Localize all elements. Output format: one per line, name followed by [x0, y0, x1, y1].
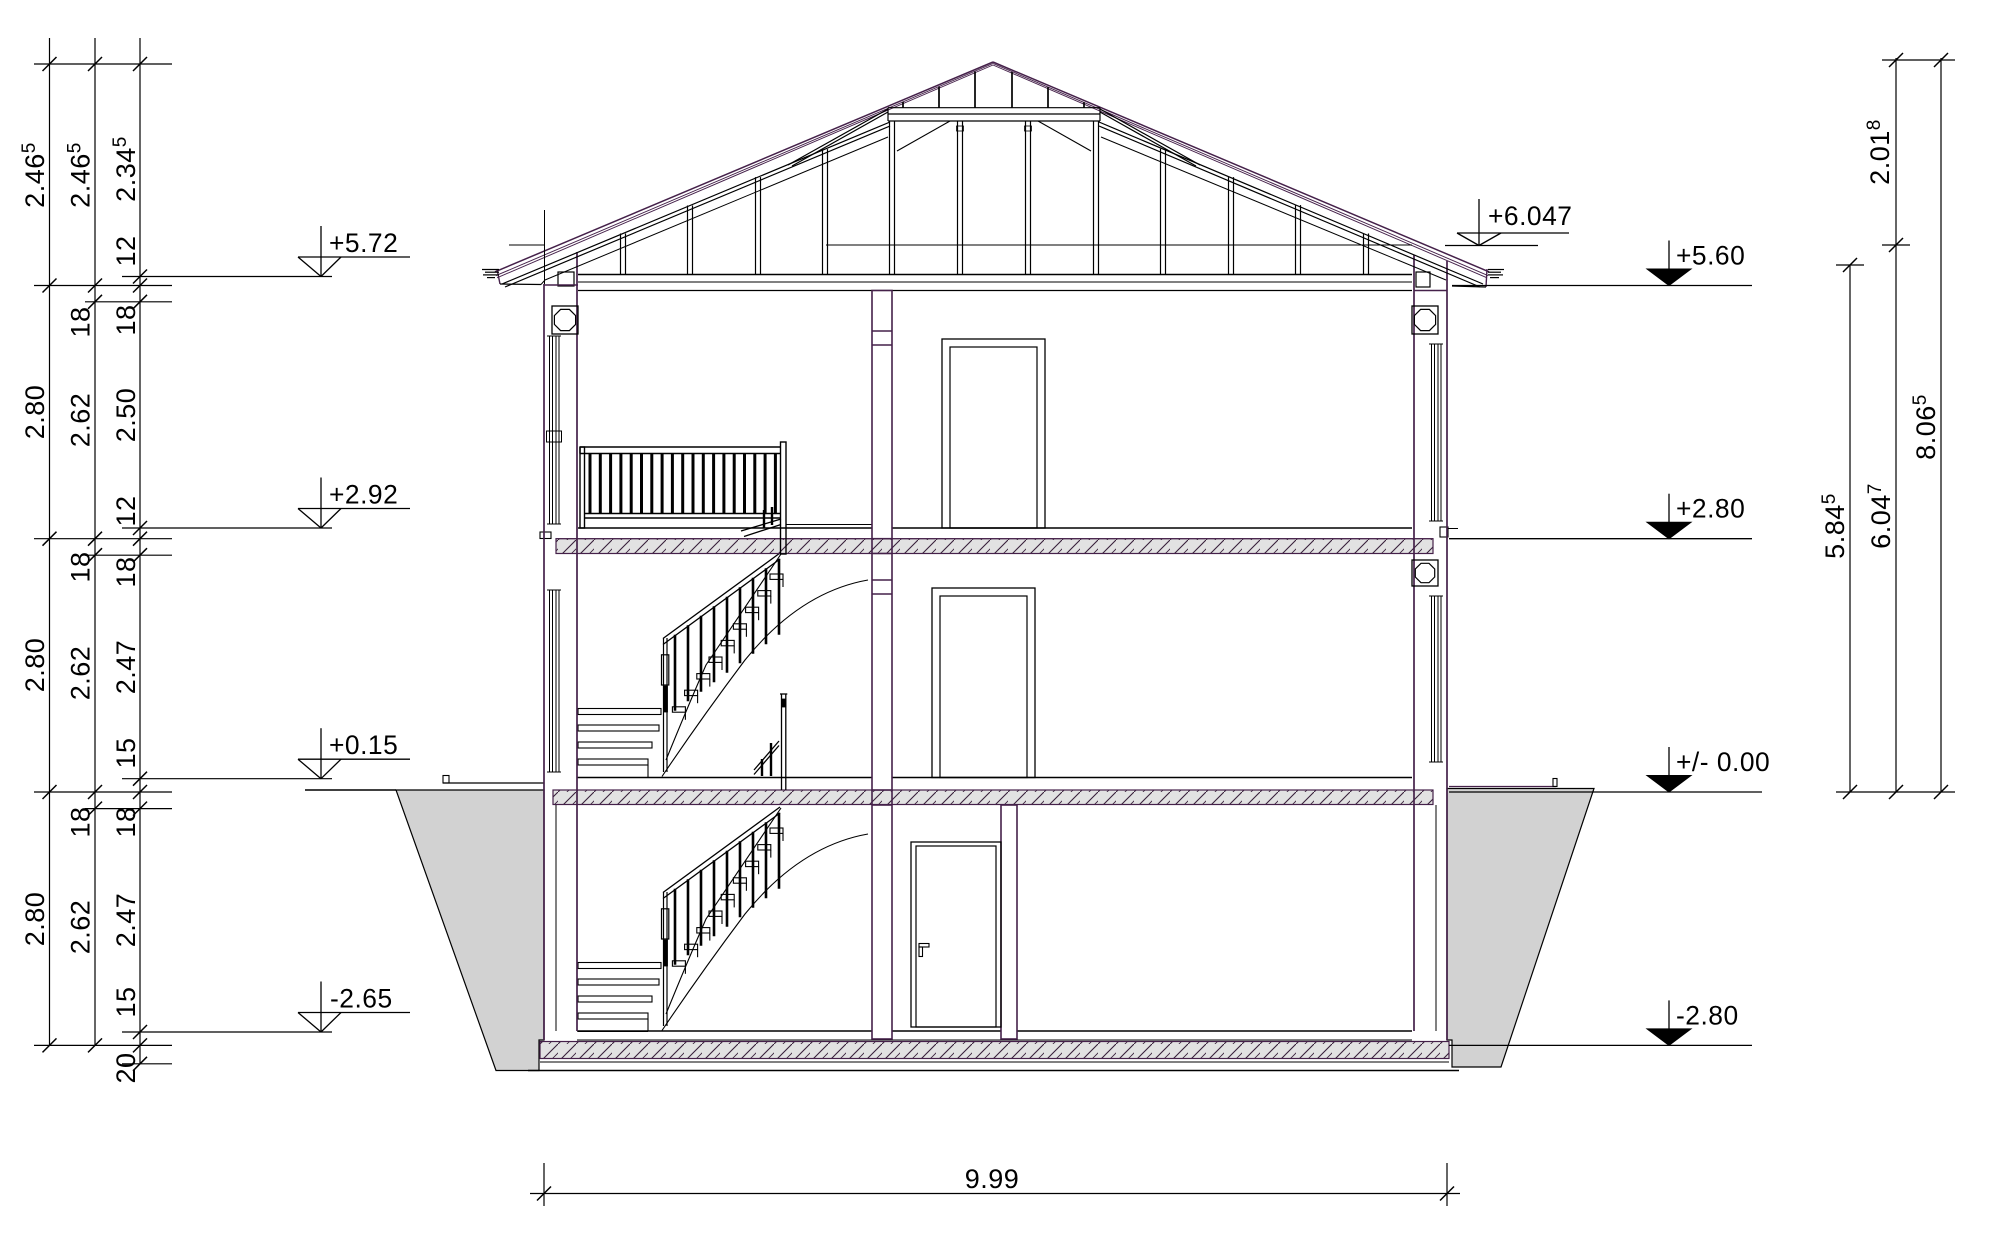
svg-text:+2.80: +2.80: [1676, 494, 1745, 524]
svg-text:+5.72: +5.72: [329, 228, 398, 258]
svg-text:2.80: 2.80: [20, 385, 50, 440]
svg-text:+2.92: +2.92: [329, 480, 398, 510]
svg-text:9.99: 9.99: [965, 1164, 1020, 1194]
svg-text:+/- 0.00: +/- 0.00: [1676, 747, 1770, 777]
svg-text:2.62: 2.62: [66, 900, 96, 955]
svg-text:20: 20: [111, 1052, 141, 1083]
svg-text:18: 18: [111, 304, 141, 335]
svg-text:+5.60: +5.60: [1676, 241, 1745, 271]
svg-text:+0.15: +0.15: [329, 730, 398, 760]
svg-text:12: 12: [111, 495, 141, 526]
svg-text:2.80: 2.80: [20, 892, 50, 947]
svg-text:18: 18: [66, 806, 96, 837]
svg-text:+6.047: +6.047: [1488, 201, 1572, 231]
svg-text:-2.65: -2.65: [330, 984, 393, 1014]
svg-text:18: 18: [66, 306, 96, 337]
svg-text:18: 18: [111, 556, 141, 587]
svg-text:2.62: 2.62: [66, 646, 96, 701]
svg-text:2.80: 2.80: [20, 638, 50, 693]
svg-text:2.47: 2.47: [111, 640, 141, 695]
svg-text:-2.80: -2.80: [1676, 1000, 1739, 1030]
svg-text:12: 12: [111, 235, 141, 266]
svg-text:2.62: 2.62: [66, 393, 96, 448]
svg-text:15: 15: [111, 737, 141, 768]
svg-text:2.47: 2.47: [111, 893, 141, 948]
svg-text:18: 18: [66, 551, 96, 582]
svg-text:15: 15: [111, 986, 141, 1017]
svg-text:18: 18: [111, 806, 141, 837]
svg-text:2.50: 2.50: [111, 388, 141, 443]
